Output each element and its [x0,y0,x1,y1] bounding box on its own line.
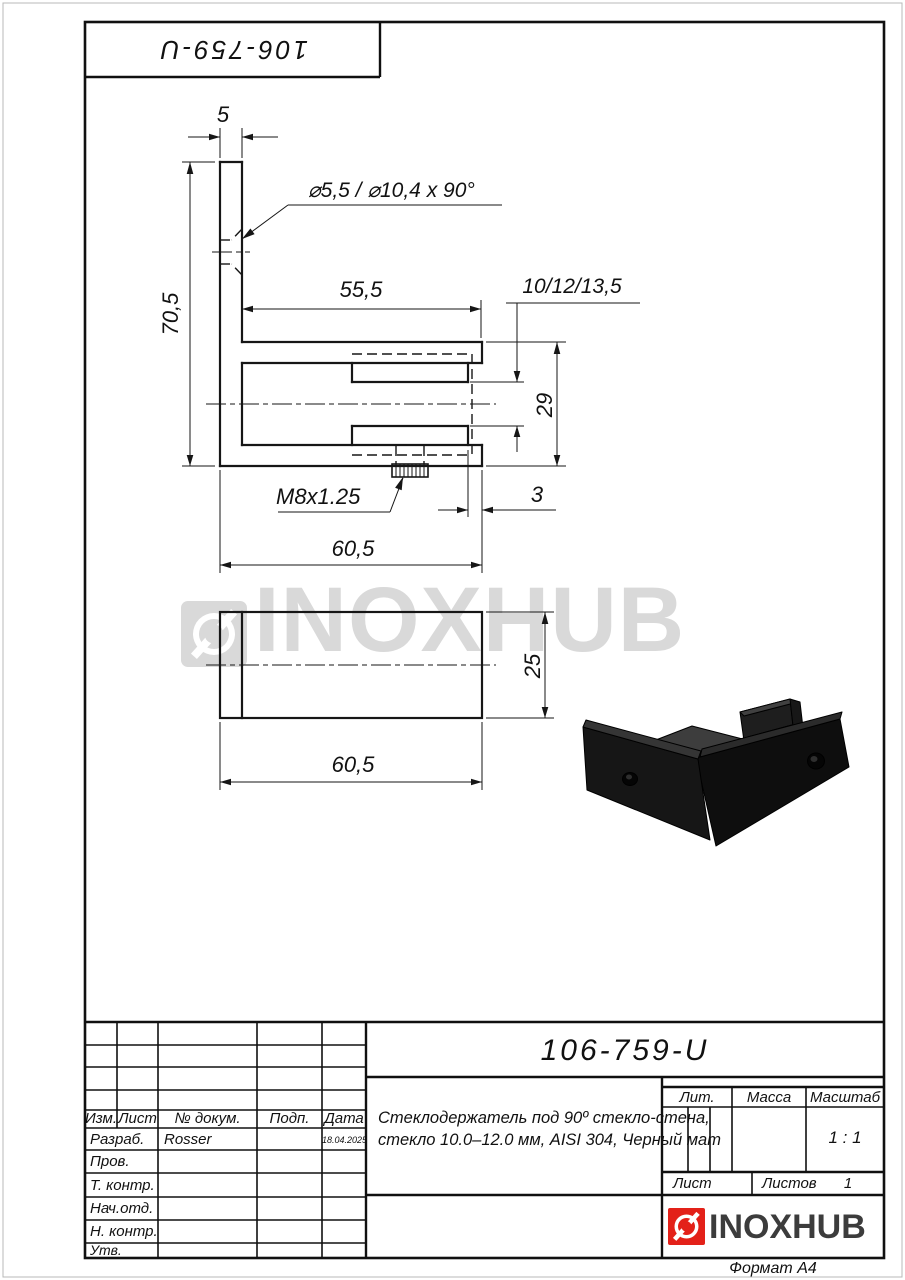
header-sign: Подп. [257,1110,322,1127]
doc-number-rotated: 106-759-U [158,34,308,65]
dim-thread: M8x1.25 [276,484,360,510]
format-label: Формат А4 [662,1260,884,1278]
row-label-dept-head: Нач.отд. [90,1200,153,1217]
header-list: Лист [117,1110,158,1127]
dim-total-length-bottom: 60,5 [303,752,403,778]
sheet-label: Лист [673,1175,712,1192]
scale-value: 1 : 1 [806,1128,884,1148]
dim-glass-range: 10/12/13,5 [506,275,638,299]
developed-date: 18.04.2025 [322,1135,366,1145]
titleblock-doc-number: 106-759-U [366,1034,884,1068]
part-3d-render [583,699,849,846]
part-description-line1: Стеклодержатель под 90º стекло-стена, [378,1109,710,1128]
sheets-value: 1 [838,1175,858,1192]
header-izm: Изм. [85,1110,117,1127]
doc-number-box: 106-759-U [85,22,380,77]
part-description-line2: стекло 10.0–12.0 мм, AISI 304, Черный ма… [378,1131,721,1150]
dim-tip-offset: 3 [522,482,552,508]
row-label-approved: Утв. [90,1242,122,1258]
header-doc: № докум. [158,1110,257,1127]
dim-arm-length: 55,5 [311,277,411,303]
dim-wall-thickness: 5 [200,102,246,128]
inoxhub-logo-icon [668,1208,705,1245]
header-lit: Лит. [662,1089,732,1106]
dim-height: 70,5 [158,279,184,349]
sheets-label: Листов [762,1175,817,1192]
dim-hole-callout: ⌀5,5 / ⌀10,4 x 90° [308,178,475,203]
row-label-checked: Пров. [90,1153,130,1170]
inoxhub-logo-text: INOXHUB [709,1208,866,1247]
row-label-tcontrol: Т. контр. [90,1177,155,1194]
row-label-developed: Разраб. [90,1131,144,1148]
header-date: Дата [322,1110,366,1127]
header-mass: Масса [732,1089,806,1106]
dim-body-width: 25 [520,631,546,701]
dim-total-length: 60,5 [303,536,403,562]
row-label-ncontrol: Н. контр. [90,1223,158,1240]
drawing-sheet: INOXHUB [0,0,905,1280]
dim-channel-height: 29 [532,370,558,440]
developer-name: Rosser [164,1131,212,1148]
header-scale: Масштаб [806,1089,884,1106]
